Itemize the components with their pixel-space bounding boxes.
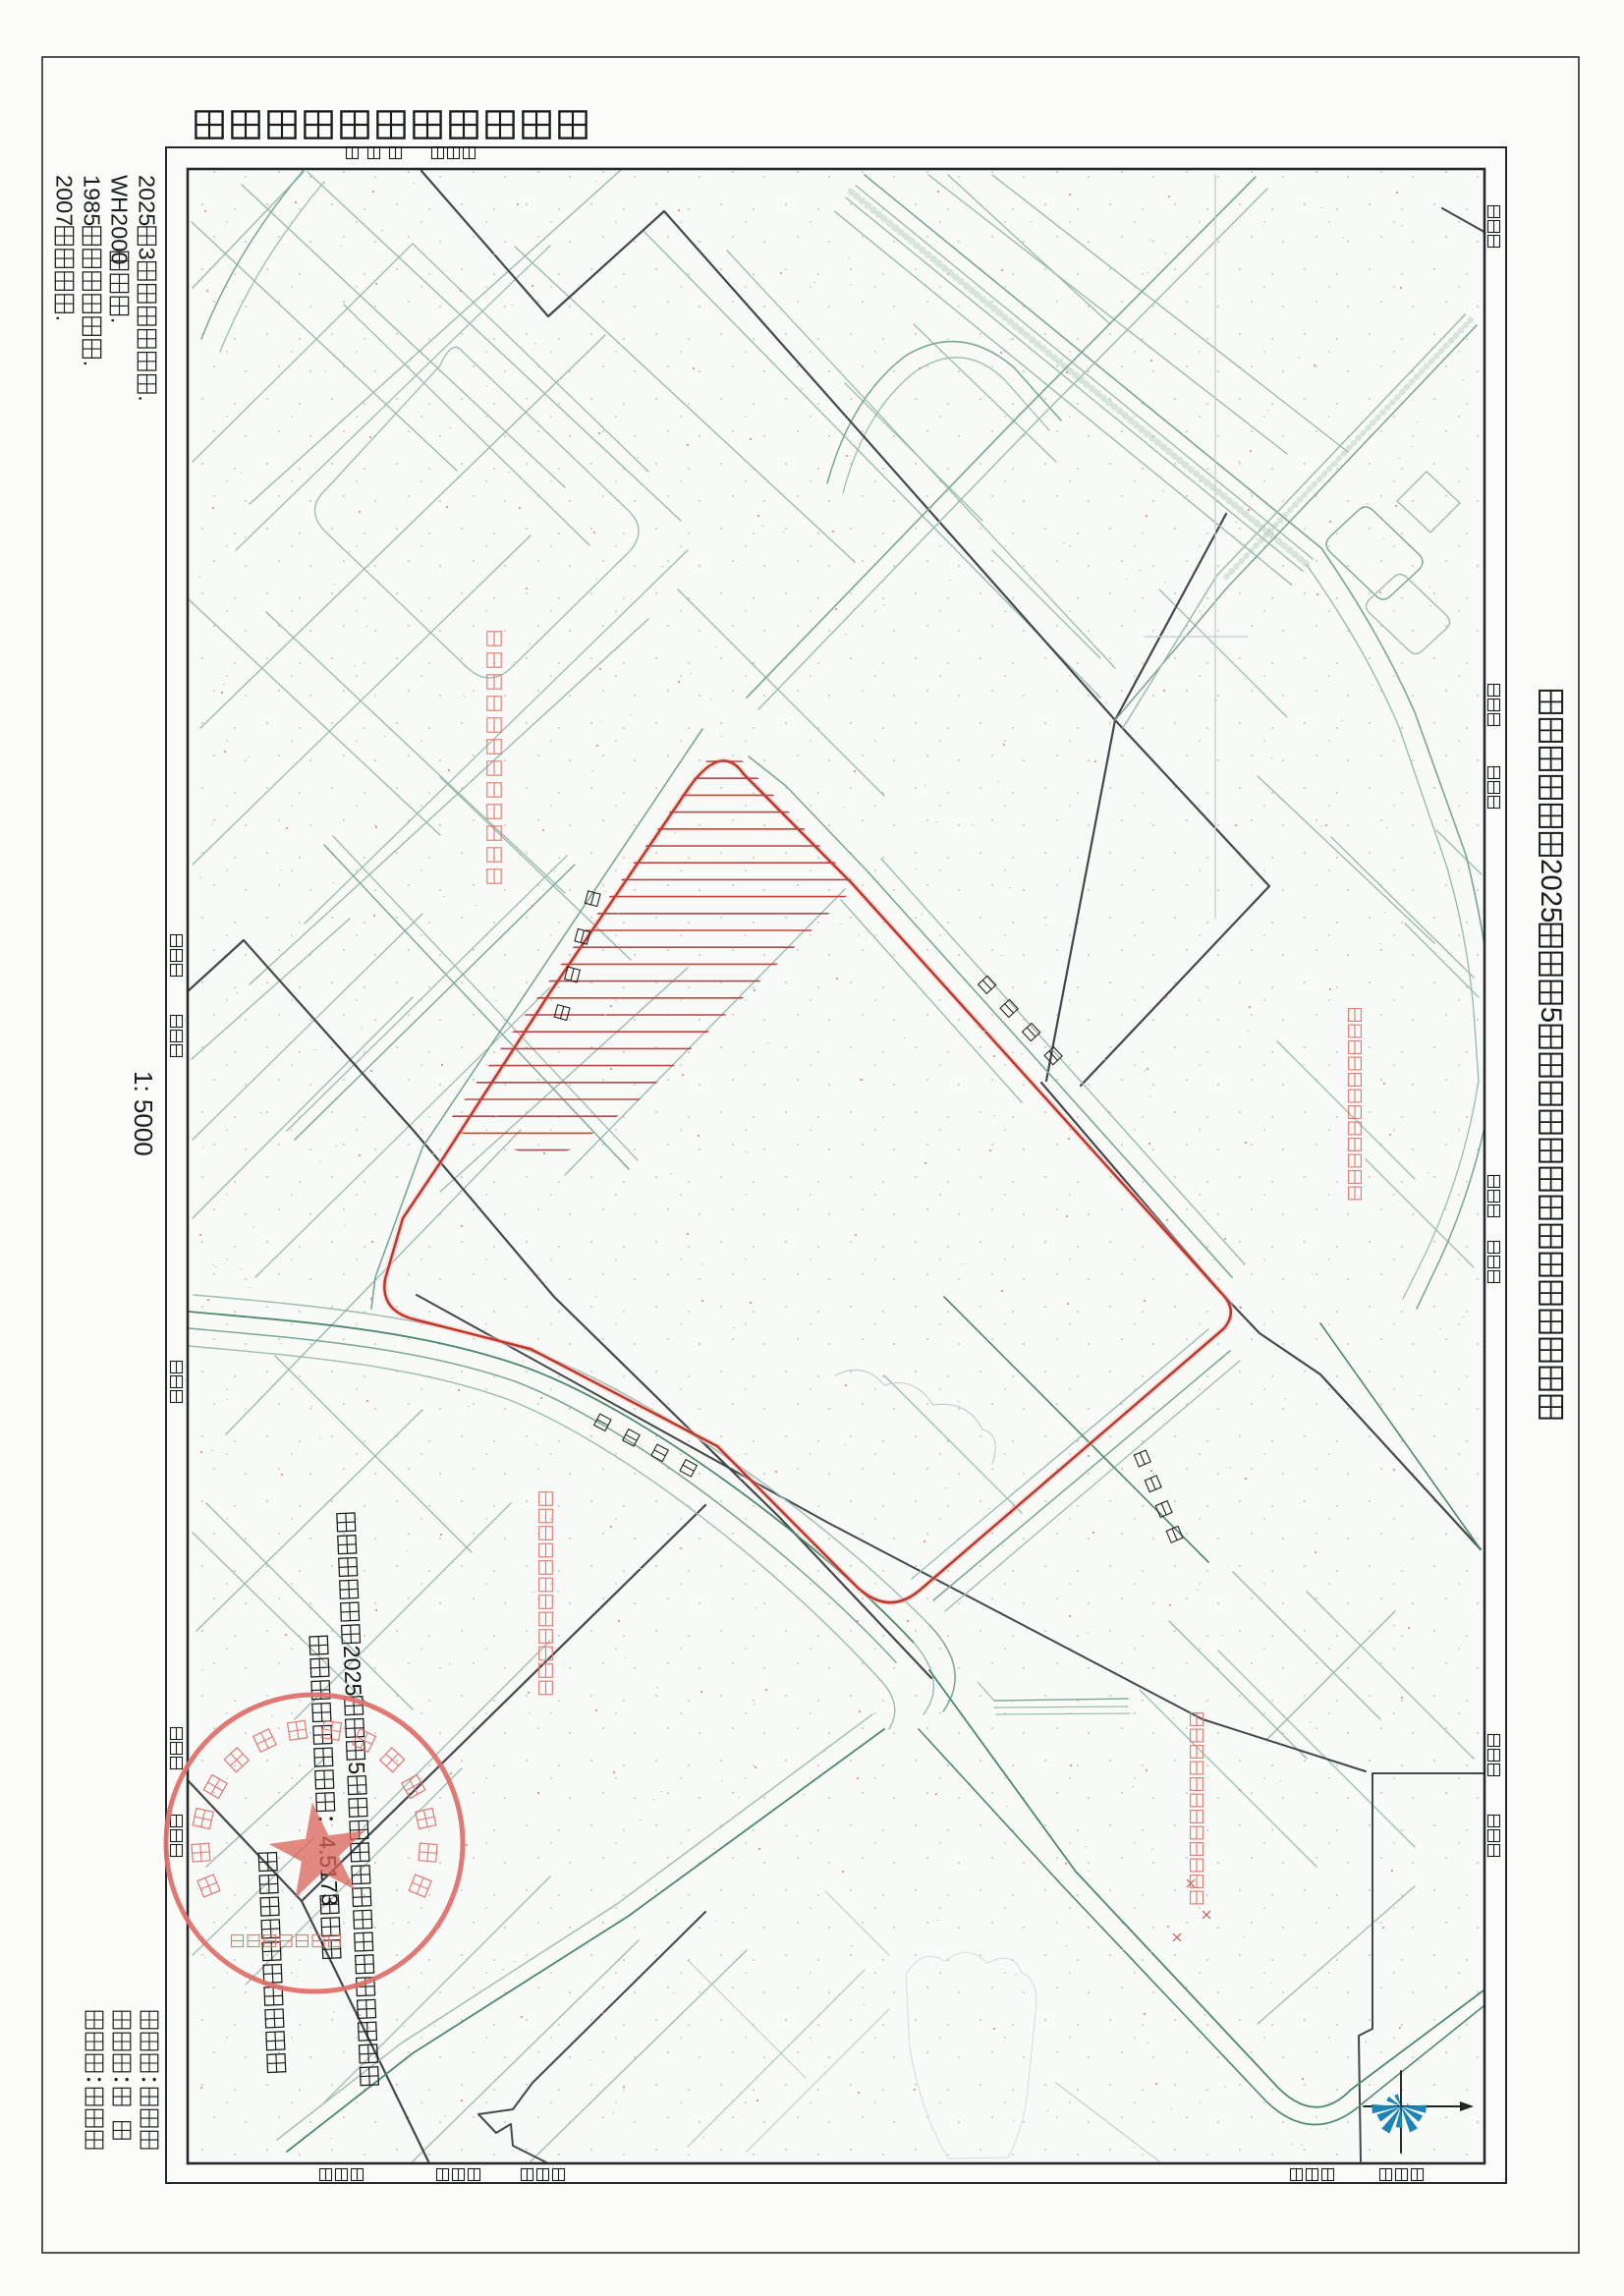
svg-text:2025: 2025 (339, 1645, 366, 1697)
svg-text:3: 3 (135, 248, 160, 260)
svg-text:5: 5 (1535, 1007, 1567, 1023)
svg-text:2007: 2007 (52, 175, 78, 226)
svg-text:.: . (52, 315, 78, 322)
svg-text:.: . (80, 361, 105, 367)
svg-text:.: . (107, 317, 133, 324)
svg-text:1: 5000: 1: 5000 (129, 1071, 158, 1156)
svg-text:2025: 2025 (1535, 859, 1567, 923)
svg-text:2025: 2025 (135, 175, 160, 226)
svg-text:.: . (135, 395, 160, 402)
svg-text:5: 5 (344, 1762, 370, 1775)
svg-text:1985: 1985 (80, 175, 105, 226)
